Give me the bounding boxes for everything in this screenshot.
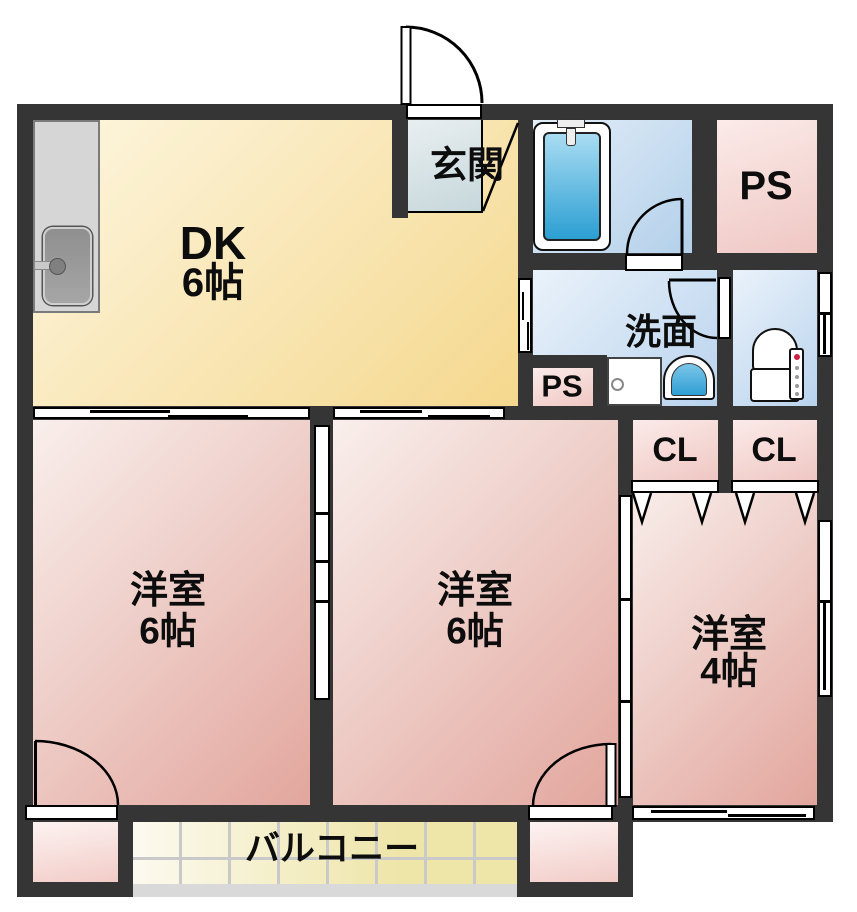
kitchen-faucet-icon (49, 258, 66, 275)
toilet-remote-dot (795, 366, 799, 370)
wall-alcove-left-bottom (17, 882, 133, 897)
label-balcony: バルコニー (245, 832, 419, 867)
slider-tick (621, 598, 630, 601)
slider-tick (316, 600, 328, 603)
label-bedroom-right-name: 洋室 (691, 616, 767, 654)
window-tick (823, 602, 826, 690)
toilet-doorway (718, 277, 731, 339)
balcony-rail (133, 884, 517, 897)
sliding-door-dk-washroom (518, 278, 532, 353)
alcove-left-doorway (25, 805, 118, 820)
label-genkan: 玄関 (430, 147, 504, 184)
alcove-middle (530, 820, 618, 882)
slider-tick (316, 560, 328, 563)
wall-genkan-stub (392, 118, 408, 218)
washing-machine-dial (611, 378, 624, 391)
sliding-door-dk-room-left (33, 407, 310, 419)
slider-tick (90, 410, 170, 413)
window-tick (823, 314, 826, 354)
label-bedroom-left-name: 洋室 (130, 572, 206, 610)
slider-tick (527, 322, 530, 350)
wash-basin-bowl (671, 363, 707, 396)
slider-tick (522, 292, 525, 320)
entrance-threshold (406, 104, 482, 119)
label-ps-top: PS (739, 166, 792, 206)
toilet-remote-led (794, 354, 800, 360)
wall-left (17, 104, 33, 897)
partition-left-center (314, 425, 330, 700)
label-ps-small: PS (541, 371, 582, 402)
window-tick (651, 810, 727, 813)
wall-alcove-mid-bottom (517, 882, 633, 897)
alcove-left (33, 820, 118, 882)
slider-tick (360, 410, 422, 413)
sliding-door-dk-room-center (333, 407, 505, 419)
label-washroom: 洗面 (625, 314, 697, 350)
slider-tick (621, 700, 630, 703)
wall-bath-ps-post (692, 104, 717, 253)
bathtub-basin (543, 132, 601, 241)
alcove-middle-doorway (528, 805, 613, 820)
closet-right-folding-door (731, 480, 819, 493)
slider-tick (168, 415, 248, 418)
toilet-remote-dot (795, 392, 799, 396)
closet-left-folding-door (631, 480, 719, 493)
window-bedroom-right-bottom (632, 806, 815, 820)
bath-faucet-icon (566, 128, 576, 146)
window-tick (728, 814, 806, 817)
wall-right (817, 104, 833, 822)
label-closet-left: CL (652, 433, 697, 467)
label-bedroom-left-size: 6帖 (139, 613, 197, 650)
bathroom-doorway (625, 254, 683, 271)
slider-tick (316, 512, 328, 515)
label-dk-size: 6帖 (182, 263, 244, 303)
floor-plan: DK 6帖 玄関 PS 洗面 PS CL CL 洋室 6帖 洋室 6帖 洋室 4… (0, 0, 857, 912)
slider-tick (428, 415, 490, 418)
bath-faucet-icon (557, 119, 585, 128)
label-bedroom-center-size: 6帖 (446, 613, 504, 650)
toilet-remote-dot (795, 375, 799, 379)
toilet-remote-dot (795, 384, 799, 388)
partition-center-right (619, 495, 632, 798)
label-bedroom-center-name: 洋室 (437, 572, 513, 610)
label-bedroom-right-size: 4帖 (700, 653, 758, 690)
label-closet-right: CL (751, 433, 796, 467)
label-dk-name: DK (180, 220, 246, 266)
entrance-door-icon (402, 27, 483, 104)
